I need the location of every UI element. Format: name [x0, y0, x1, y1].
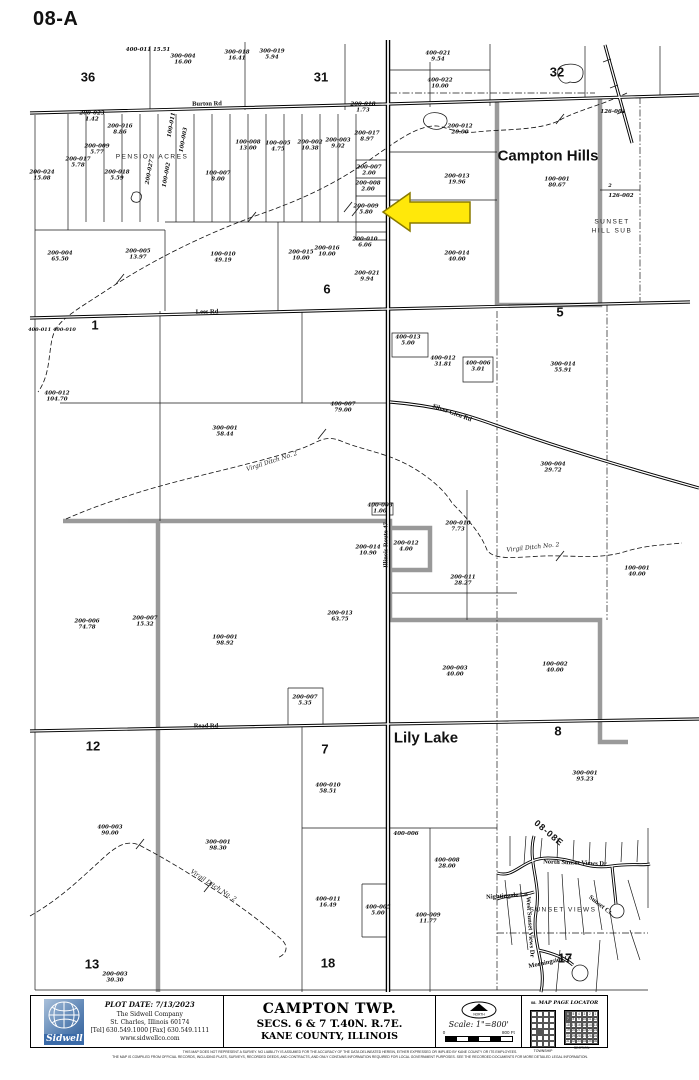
- scale-end: 800 Ft: [502, 1030, 515, 1035]
- parcel-label-400-005: 400-0055.00: [365, 905, 390, 918]
- creek-label-virgil-ditch-2: Virgil Ditch No. 2: [506, 542, 560, 554]
- sidwell-logo: Sidwell: [44, 999, 84, 1045]
- section-number-7: 7: [321, 742, 328, 757]
- section-number-32: 32: [550, 65, 564, 80]
- parcel-label-100-008: 100-00813.00: [235, 140, 260, 153]
- parcel-label-100-001: 100-00198.92: [212, 635, 237, 648]
- township-cell: [549, 1041, 555, 1047]
- scale-panel: NORTH Scale: 1"=800' 0 800 Ft: [436, 996, 522, 1047]
- parcel-label-100-001: 100-00140.00: [624, 566, 649, 579]
- parcel-label-400-006: 400-006: [393, 831, 418, 837]
- road-label-burton-rd: Burton Rd: [192, 100, 222, 108]
- section-number-1: 1: [91, 318, 98, 333]
- scale-bar-labels: 0 800 Ft: [443, 1030, 515, 1035]
- parcel-label-200-007: 200-0072.00: [356, 165, 381, 178]
- road-label-read-rd: Read Rd: [194, 723, 218, 730]
- parcel-label-126-001: 126-001: [600, 109, 625, 115]
- parcel-label-200-013: 200-01319.96: [444, 174, 469, 187]
- section-number-12: 12: [86, 739, 100, 754]
- township-county: KANE COUNTY, ILLINOIS: [261, 1031, 398, 1042]
- plat-map-sheet: 08-A: [0, 0, 699, 1080]
- parcel-label-200-012: 200-01220.00: [447, 124, 472, 137]
- scale-text: Scale: 1"=800': [449, 1020, 509, 1029]
- parcel-label-200-006: 200-00674.78: [74, 619, 99, 632]
- parcel-label-200-018: 200-0185.59: [104, 170, 129, 183]
- parcel-label-200-015: 200-01510.00: [288, 250, 313, 263]
- parcel-label-300-004: 300-00429.72: [540, 462, 565, 475]
- title-block: Sidwell PLOT DATE: 7/13/2023 The Sidwell…: [30, 995, 608, 1048]
- parcel-label-200-018: 200-0181.73: [350, 102, 375, 115]
- township-title: CAMPTON TWP.: [263, 1001, 397, 1017]
- parcel-label-200-021: 200-0219.94: [354, 271, 379, 284]
- north-arrow-text: NORTH: [473, 1013, 485, 1017]
- parcel-label-100-010: 100-01049.19: [210, 252, 235, 265]
- parcel-label-400-008: 400-00828.00: [434, 858, 459, 871]
- adjacent-page-label: 08-08E: [532, 818, 565, 848]
- parcel-label-400-006: 400-0063.01: [465, 361, 490, 374]
- parcel-label-300-001: 300-00195.23: [572, 771, 597, 784]
- parcel-label-300-019: 300-0195.94: [259, 49, 284, 62]
- parcel-label-300-018: 300-01816.41: [224, 50, 249, 63]
- parcel-label-100-011: 100-011: [167, 112, 178, 138]
- parcel-label-400-008: 400-0081.00: [367, 503, 392, 516]
- parcel-label-200-009: 200-0095.80: [353, 204, 378, 217]
- parcel-label-200-023: 200-0231.42: [79, 111, 104, 124]
- parcel-label-200-003: 200-00330.30: [102, 972, 127, 985]
- road-label-illinois-route-47: Illinois Route 47: [383, 522, 390, 568]
- scale-zero: 0: [443, 1030, 446, 1035]
- parcel-label-200-007: 200-00715.32: [132, 616, 157, 629]
- parcel-label-400-012: 400-012104.70: [44, 391, 69, 404]
- parcel-label-200-009: 200-0095.77: [84, 144, 109, 157]
- section-grid: 6543217891011121817161514131920212223243…: [564, 1010, 599, 1045]
- publisher-panel: Sidwell PLOT DATE: 7/13/2023 The Sidwell…: [31, 996, 224, 1047]
- creek-label-virgil-ditch-1: Virgil Ditch No. 2: [246, 451, 299, 473]
- locator-book-number: 08.: [531, 1000, 537, 1005]
- parcel-label-200-012: 200-0124.00: [393, 541, 418, 554]
- road-label-silver-glen-rd: Silver Glen Rd: [432, 403, 473, 424]
- disclaimer-line-2: THE MAP IS COMPILED FROM OFFICIAL RECORD…: [60, 1055, 640, 1060]
- parcel-pair-label: 400-011 400-010: [28, 327, 76, 333]
- township-grid: [530, 1010, 556, 1048]
- globe-icon: [44, 999, 84, 1033]
- road-label-lees-rd: Lees Rd: [196, 308, 219, 315]
- scale-bar: [445, 1036, 513, 1042]
- parcel-label-200-003: 200-0039.02: [325, 138, 350, 151]
- creek-label-virgil-ditch-3: Virgil Ditch No. 2: [189, 869, 237, 903]
- parcel-label-400-007: 400-00779.00: [330, 402, 355, 415]
- plot-date: PLOT DATE: 7/13/2023: [90, 1000, 209, 1009]
- section-grid-wrap: 6543217891011121817161514131920212223243…: [564, 1010, 599, 1050]
- parcel-label-200-005: 200-00513.97: [125, 249, 150, 262]
- road-label-nightingale-ln: Nightingale Ln: [486, 891, 528, 901]
- township-sections: SECS. 6 & 7 T.40N. R.7E.: [257, 1018, 403, 1030]
- parcel-label-200-017: 200-0178.97: [354, 131, 379, 144]
- parcel-label-200-002: 200-00210.38: [297, 140, 322, 153]
- parcel-label-400-013: 400-0135.00: [395, 335, 420, 348]
- parcel-label-400-011: 400-011 15.51: [126, 47, 170, 53]
- parcel-label-100-001: 100-00180.67: [544, 177, 569, 190]
- company-website: www.sidwellco.com: [90, 1035, 209, 1043]
- lot-number-2: 2: [608, 183, 611, 189]
- parcel-label-300-004: 300-00416.00: [170, 54, 195, 67]
- section-number-31: 31: [314, 70, 328, 85]
- company-name: The Sidwell Company: [90, 1011, 209, 1019]
- municipality-label-lily-lake: Lily Lake: [394, 730, 458, 747]
- locator-title-row: 08.MAP PAGE LOCATOR: [531, 991, 598, 1009]
- parcel-label-200-016: 200-01610.00: [314, 246, 339, 259]
- map-page-locator-panel: 08.MAP PAGE LOCATOR TOWNSHIP 65432178910…: [522, 996, 607, 1047]
- section-cell-36: 36: [593, 1039, 599, 1045]
- parcel-label-200-013: 200-01363.75: [327, 611, 352, 624]
- road-label-north-sunset-views-dr: North Sunset Views Dr: [543, 858, 607, 867]
- parcel-label-400-011: 400-01116.49: [315, 897, 340, 910]
- parcel-label-300-014: 300-01455.91: [550, 362, 575, 375]
- company-phones: [Tel] 630.549.1000 [Fax] 630.549.1111: [90, 1027, 209, 1035]
- north-arrow-icon: NORTH: [460, 1001, 498, 1019]
- parcel-label-400-012: 400-01231.81: [430, 356, 455, 369]
- sidwell-logo-text: Sidwell: [44, 1034, 84, 1045]
- parcel-label-100-002: 100-002: [162, 162, 173, 188]
- parcel-label-400-022: 400-02210.00: [427, 78, 452, 91]
- parcel-label-100-007: 100-0078.00: [205, 171, 230, 184]
- parcel-label-100-003: 100-003: [179, 127, 190, 153]
- map-labels: Campton HillsLily Lake363132165127813181…: [0, 0, 699, 1080]
- parcel-label-200-014: 200-01410.90: [355, 545, 380, 558]
- parcel-label-126-002: 126-002: [608, 193, 633, 199]
- parcel-label-200-004: 200-00465.50: [47, 251, 72, 264]
- parcel-label-200-014: 200-01440.00: [444, 251, 469, 264]
- municipality-label-campton-hills: Campton Hills: [498, 148, 599, 165]
- parcel-label-300-001: 300-00158.44: [212, 426, 237, 439]
- subdivision-label-sunset-hill-sub: SUNSET: [594, 219, 629, 226]
- locator-title: MAP PAGE LOCATOR: [539, 1000, 599, 1006]
- section-number-18: 18: [321, 956, 335, 971]
- parcel-label-100-002: 100-00240.00: [542, 662, 567, 675]
- parcel-label-200-007: 200-0075.35: [292, 695, 317, 708]
- parcel-label-400-009: 400-00911.77: [415, 913, 440, 926]
- subdivision-label-sunset-hill-sub-2: HILL SUB: [592, 228, 633, 235]
- parcel-label-400-010: 400-01058.51: [315, 783, 340, 796]
- township-grid-wrap: TOWNSHIP: [530, 1010, 556, 1053]
- parcel-label-400-003: 400-00390.00: [97, 825, 122, 838]
- parcel-label-200-011: 200-01128.27: [450, 575, 475, 588]
- parcel-label-200-027: 200-027: [145, 159, 156, 185]
- parcel-label-200-003: 200-00340.00: [442, 666, 467, 679]
- map-title-panel: CAMPTON TWP. SECS. 6 & 7 T.40N. R.7E. KA…: [224, 996, 437, 1047]
- parcel-label-200-010: 200-0106.06: [352, 237, 377, 250]
- subdivision-label-sunset-views: SUNSET VIEWS: [529, 907, 596, 914]
- locator-grids: TOWNSHIP 6543217891011121817161514131920…: [530, 1010, 599, 1053]
- parcel-label-400-021: 400-0219.54: [425, 51, 450, 64]
- section-number-6: 6: [323, 282, 330, 297]
- parcel-label-200-024: 200-02415.08: [29, 170, 54, 183]
- parcel-label-100-005: 100-0054.75: [265, 141, 290, 154]
- section-number-5: 5: [556, 305, 563, 320]
- publisher-address: PLOT DATE: 7/13/2023 The Sidwell Company…: [90, 1000, 209, 1043]
- company-city: St. Charles, Illinois 60174: [90, 1019, 209, 1027]
- parcel-label-200-010: 200-0107.73: [445, 521, 470, 534]
- parcel-label-200-017: 200-0175.78: [65, 157, 90, 170]
- parcel-label-200-008: 200-0082.00: [355, 181, 380, 194]
- parcel-label-200-016: 200-0168.86: [107, 124, 132, 137]
- section-number-36: 36: [81, 70, 95, 85]
- section-number-13: 13: [85, 957, 99, 972]
- section-number-8: 8: [554, 724, 561, 739]
- disclaimer-text: THIS MAP DOES NOT REPRESENT A SURVEY. NO…: [60, 1050, 640, 1060]
- parcel-label-300-001: 300-00198.30: [205, 840, 230, 853]
